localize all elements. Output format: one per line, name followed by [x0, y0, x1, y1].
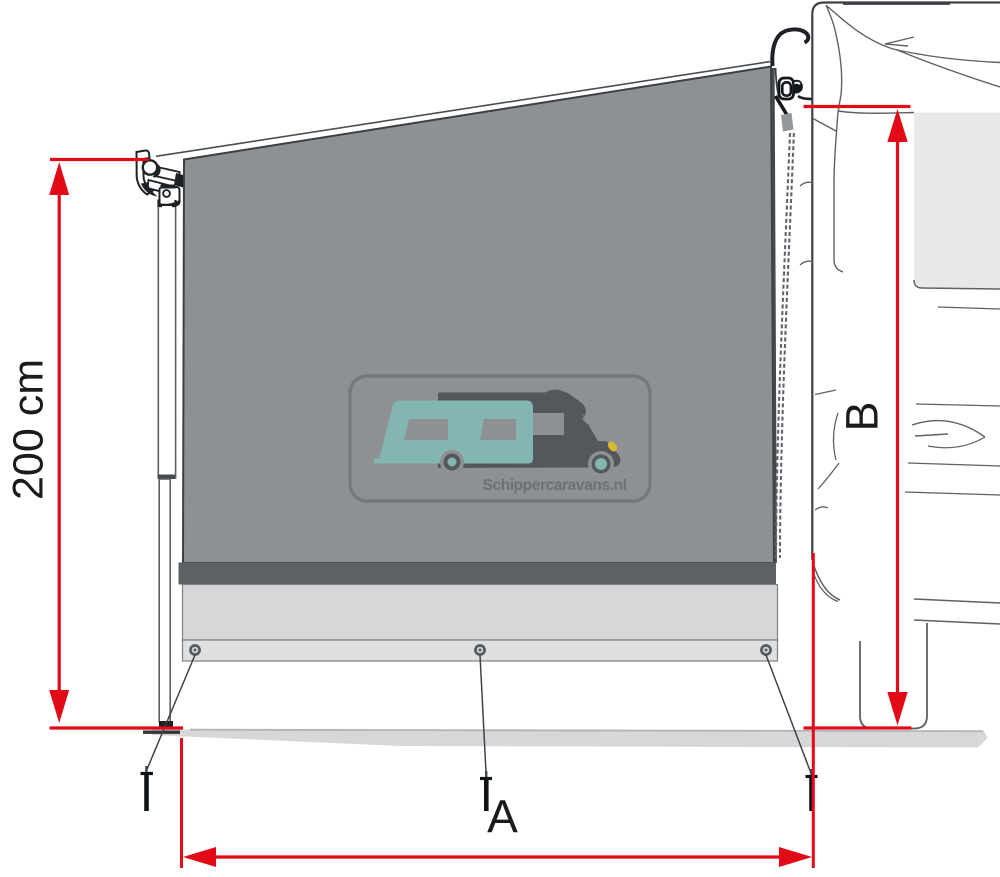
- svg-text:A: A: [487, 791, 518, 843]
- svg-text:Schippercaravans.nl: Schippercaravans.nl: [482, 477, 626, 494]
- svg-text:200 cm: 200 cm: [5, 359, 53, 500]
- svg-text:B: B: [837, 401, 888, 431]
